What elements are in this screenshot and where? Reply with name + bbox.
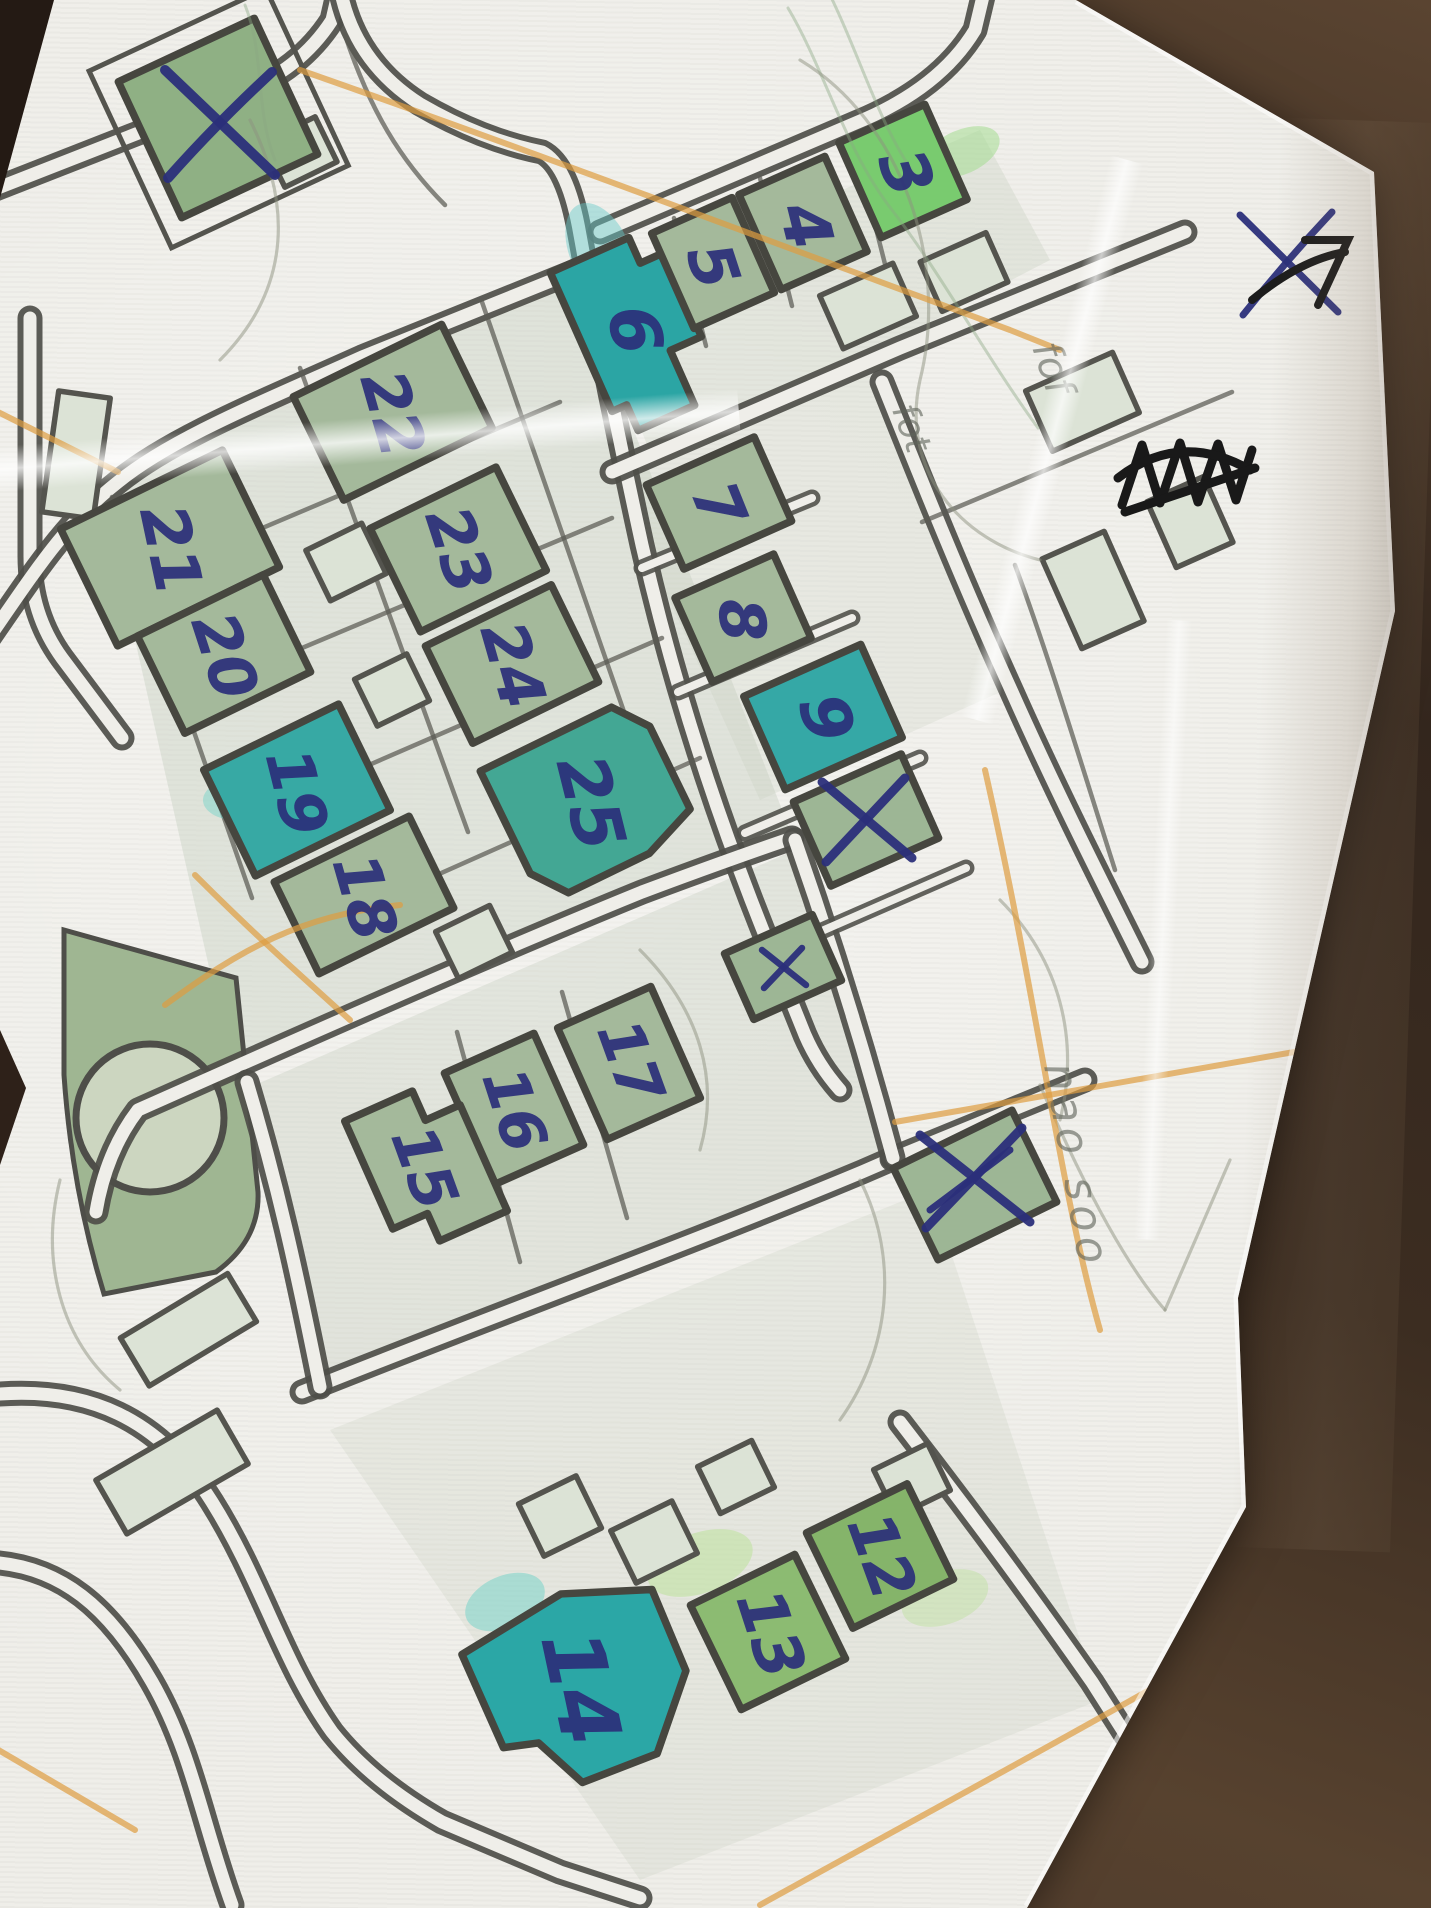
pencil-note-3: nao soo xyxy=(1033,1059,1119,1272)
cross-mark-paper-corner xyxy=(1240,212,1348,315)
number-8: 8 xyxy=(704,595,780,644)
paper-map: 3 4 5 6 7 8 9 12 13 14 15 16 17 18 19 20… xyxy=(0,0,1431,1908)
photo-of-map: 3 4 5 6 7 8 9 12 13 14 15 16 17 18 19 20… xyxy=(0,0,1431,1908)
map-drawing: 3 4 5 6 7 8 9 12 13 14 15 16 17 18 19 20… xyxy=(0,0,1431,1908)
